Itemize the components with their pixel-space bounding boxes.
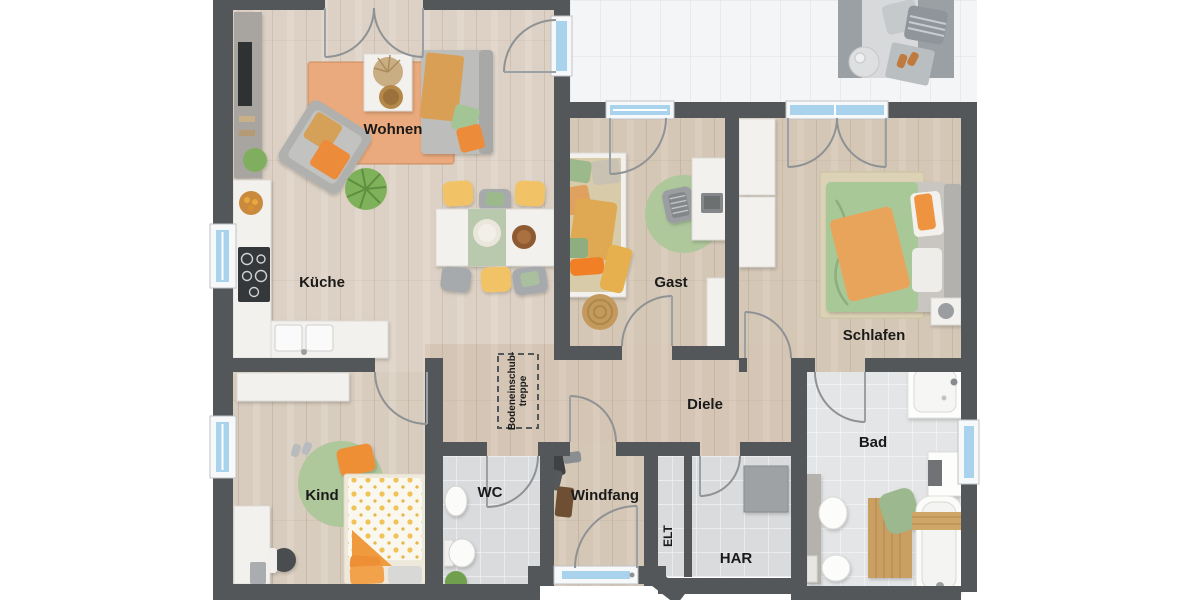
label-schlafen: Schlafen [843,327,906,344]
chair-yellow [514,180,545,207]
attic-stairs-label-line2: treppe [518,375,529,406]
double-bed [826,182,961,312]
coffee-table [364,54,412,111]
tray [849,47,879,77]
window-kitchen [210,224,236,288]
har-boiler [744,466,788,512]
kind-dresser [237,373,349,401]
label-wohnen: Wohnen [364,121,423,138]
window-terrace-door [551,16,572,76]
wc-sink [445,486,467,516]
pillow [912,248,942,292]
floorplan-canvas: Bodeneinschub- treppe Wohnen Küche Gast … [0,0,1200,600]
label-wc: WC [478,484,503,501]
bath-sink [819,497,847,529]
chair-gray [440,265,472,293]
bedroom-closets [739,119,775,267]
label-har: HAR [720,550,753,567]
kind-bed [344,474,426,585]
window-schlafen [786,101,888,119]
palm-plant [345,168,387,210]
chair-yellow [480,266,511,293]
tv-screen [238,42,252,106]
floorplan-svg: Bodeneinschub- treppe Wohnen Küche Gast … [0,0,1200,600]
label-elt: ELT [661,524,675,546]
label-windfang: Windfang [571,487,639,504]
sofa [420,50,493,154]
window-bad [958,420,979,484]
tub-caddy [912,512,964,530]
guest-desk [692,158,726,240]
headboard [944,184,961,310]
entry-door [554,566,638,584]
label-kind: Kind [305,487,338,504]
plant-sideboard [243,148,267,172]
chair-yellow [442,180,474,207]
label-diele: Diele [687,396,723,413]
bath-toilet [822,555,850,581]
attic-stairs-label-line1: Bodeneinschub- [507,352,518,430]
label-bad: Bad [859,434,887,451]
label-gast: Gast [654,274,687,291]
bath-cistern [807,556,817,582]
window-gast [606,101,674,119]
fruit-bowl [239,191,263,215]
label-kueche: Küche [299,274,345,291]
guest-closet [707,278,725,356]
keyboard [250,562,266,584]
wc-toilet [449,539,475,567]
jute-rug [582,294,618,330]
dining-set [436,180,554,296]
window-kind [210,416,236,478]
terrace-lounge [838,0,954,86]
nightstand [931,298,961,325]
